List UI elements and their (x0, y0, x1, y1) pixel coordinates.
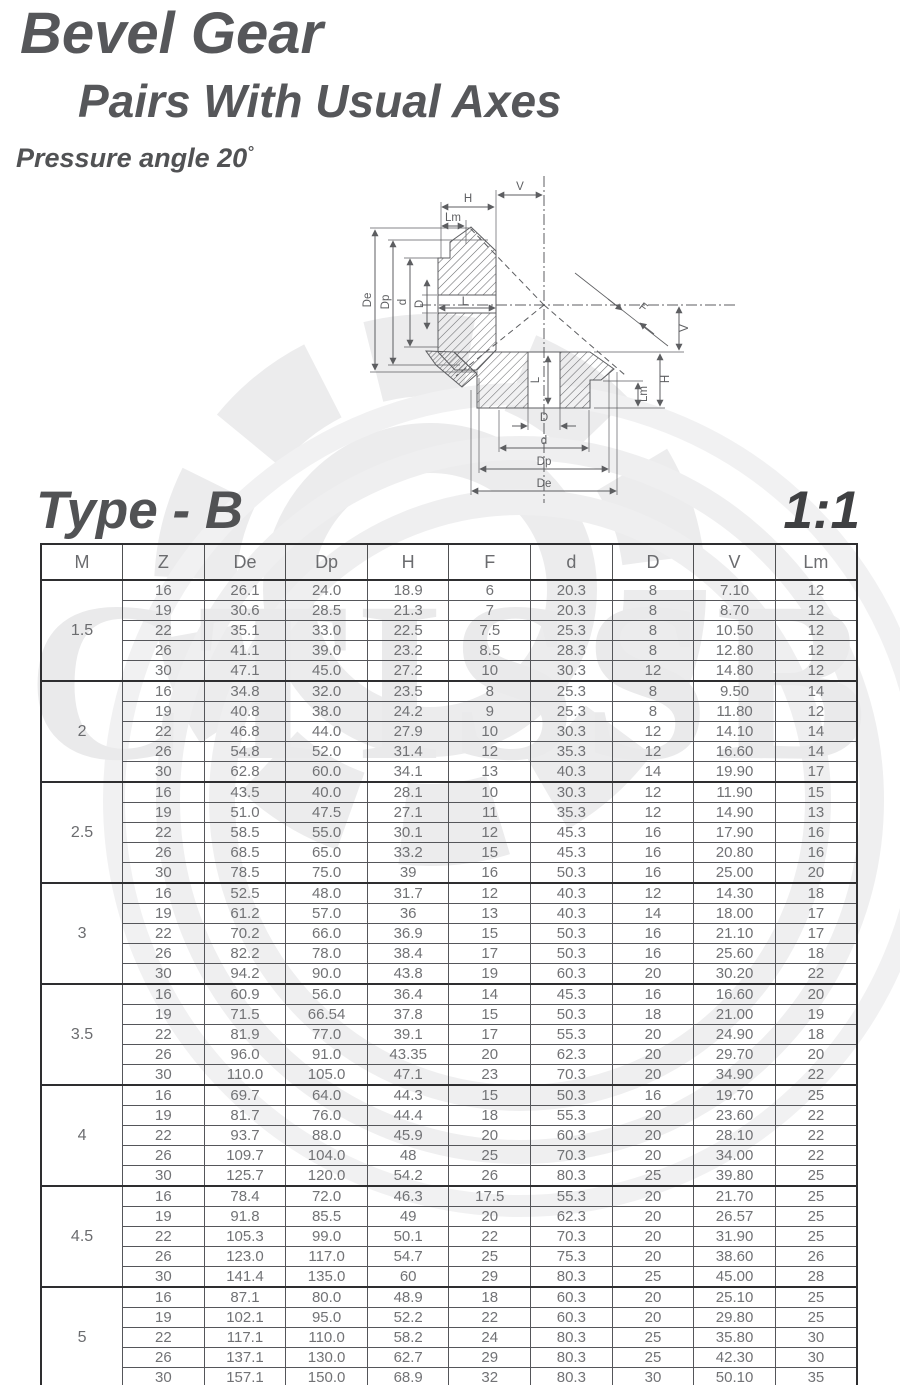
value-cell: 22 (449, 1227, 531, 1247)
table-row: 3062.860.034.11340.31419.9017 (41, 762, 857, 783)
column-header: M (41, 544, 123, 580)
value-cell: 49 (367, 1207, 449, 1227)
value-cell: 46.3 (367, 1186, 449, 1207)
value-cell: 7.10 (694, 580, 776, 601)
value-cell: 22 (449, 1308, 531, 1328)
gear-spec-table: MZDeDpHFdDVLm 1.51626.124.018.9620.387.1… (40, 543, 858, 1385)
value-cell: 25 (775, 1308, 857, 1328)
value-cell: 21.70 (694, 1186, 776, 1207)
value-cell: 26 (449, 1166, 531, 1187)
value-cell: 39.1 (367, 1025, 449, 1045)
value-cell: 16 (612, 863, 694, 884)
module-cell: 3.5 (41, 984, 123, 1085)
value-cell: 13 (775, 803, 857, 823)
value-cell: 18.9 (367, 580, 449, 601)
value-cell: 19 (775, 1005, 857, 1025)
value-cell: 12 (775, 661, 857, 682)
value-cell: 80.3 (531, 1328, 613, 1348)
value-cell: 15 (449, 1005, 531, 1025)
value-cell: 80.3 (531, 1166, 613, 1187)
value-cell: 45.9 (367, 1126, 449, 1146)
value-cell: 31.90 (694, 1227, 776, 1247)
table-row: 2246.844.027.91030.31214.1014 (41, 722, 857, 742)
value-cell: 8 (612, 621, 694, 641)
value-cell: 36.9 (367, 924, 449, 944)
table-row: 2258.555.030.11245.31617.9016 (41, 823, 857, 843)
table-row: 51687.180.048.91860.32025.1025 (41, 1287, 857, 1308)
value-cell: 20 (612, 964, 694, 985)
value-cell: 22 (123, 621, 205, 641)
value-cell: 39 (367, 863, 449, 884)
dim-label-de-left: De (362, 293, 374, 308)
value-cell: 81.9 (204, 1025, 286, 1045)
value-cell: 26 (123, 641, 205, 661)
table-row: 2270.266.036.91550.31621.1017 (41, 924, 857, 944)
value-cell: 55.3 (531, 1106, 613, 1126)
value-cell: 23.2 (367, 641, 449, 661)
value-cell: 78.0 (286, 944, 368, 964)
value-cell: 32 (449, 1368, 531, 1385)
table-row: 1.51626.124.018.9620.387.1012 (41, 580, 857, 601)
value-cell: 19 (123, 1207, 205, 1227)
dim-label-bore-left: D (414, 300, 426, 308)
value-cell: 52.2 (367, 1308, 449, 1328)
value-cell: 71.5 (204, 1005, 286, 1025)
value-cell: 40.3 (531, 883, 613, 904)
value-cell: 7.5 (449, 621, 531, 641)
value-cell: 19 (123, 1005, 205, 1025)
value-cell: 14.90 (694, 803, 776, 823)
table-row: 30125.7120.054.22680.32539.8025 (41, 1166, 857, 1187)
value-cell: 11.90 (694, 782, 776, 803)
value-cell: 60.3 (531, 1126, 613, 1146)
value-cell: 14 (612, 762, 694, 783)
dim-label-l-top-bore: L (462, 296, 469, 308)
value-cell: 20 (612, 1126, 694, 1146)
value-cell: 110.0 (204, 1065, 286, 1086)
table-row: 19102.195.052.22260.32029.8025 (41, 1308, 857, 1328)
value-cell: 94.2 (204, 964, 286, 985)
value-cell: 36 (367, 904, 449, 924)
value-cell: 12 (775, 580, 857, 601)
value-cell: 19 (123, 601, 205, 621)
gear-table-head: MZDeDpHFdDVLm (41, 544, 857, 580)
module-cell: 5 (41, 1287, 123, 1385)
value-cell: 30.20 (694, 964, 776, 985)
table-row: 1981.776.044.41855.32023.6022 (41, 1106, 857, 1126)
value-cell: 60.3 (531, 1287, 613, 1308)
value-cell: 20 (612, 1287, 694, 1308)
value-cell: 25 (775, 1207, 857, 1227)
table-row: 1971.566.5437.81550.31821.0019 (41, 1005, 857, 1025)
dim-label-dp-left: Dp (380, 295, 392, 310)
value-cell: 40.0 (286, 782, 368, 803)
value-cell: 61.2 (204, 904, 286, 924)
column-header: Z (123, 544, 205, 580)
value-cell: 22 (123, 924, 205, 944)
value-cell: 105.0 (286, 1065, 368, 1086)
value-cell: 26 (123, 1045, 205, 1065)
table-row: 21634.832.023.5825.389.5014 (41, 681, 857, 702)
value-cell: 38.60 (694, 1247, 776, 1267)
value-cell: 48.9 (367, 1287, 449, 1308)
value-cell: 30.3 (531, 782, 613, 803)
value-cell: 8 (612, 580, 694, 601)
value-cell: 16 (612, 823, 694, 843)
value-cell: 141.4 (204, 1267, 286, 1288)
value-cell: 17 (449, 1025, 531, 1045)
value-cell: 29.70 (694, 1045, 776, 1065)
value-cell: 25 (775, 1166, 857, 1187)
value-cell: 44.4 (367, 1106, 449, 1126)
value-cell: 37.8 (367, 1005, 449, 1025)
value-cell: 20 (449, 1045, 531, 1065)
value-cell: 50.10 (694, 1368, 776, 1385)
value-cell: 50.3 (531, 924, 613, 944)
value-cell: 50.3 (531, 1005, 613, 1025)
value-cell: 18 (612, 1005, 694, 1025)
table-row: 26123.0117.054.72575.32038.6026 (41, 1247, 857, 1267)
column-header: Lm (775, 544, 857, 580)
value-cell: 24.90 (694, 1025, 776, 1045)
value-cell: 26 (123, 742, 205, 762)
value-cell: 25.00 (694, 863, 776, 884)
value-cell: 22 (775, 1065, 857, 1086)
value-cell: 45.3 (531, 843, 613, 863)
value-cell: 25.10 (694, 1287, 776, 1308)
value-cell: 15 (449, 924, 531, 944)
value-cell: 8.5 (449, 641, 531, 661)
value-cell: 90.0 (286, 964, 368, 985)
column-header: D (612, 544, 694, 580)
value-cell: 15 (449, 1085, 531, 1106)
value-cell: 52.5 (204, 883, 286, 904)
value-cell: 20 (775, 984, 857, 1005)
value-cell: 30 (123, 1065, 205, 1086)
value-cell: 34.1 (367, 762, 449, 783)
value-cell: 64.0 (286, 1085, 368, 1106)
value-cell: 20.80 (694, 843, 776, 863)
value-cell: 52.0 (286, 742, 368, 762)
value-cell: 26 (775, 1247, 857, 1267)
value-cell: 78.5 (204, 863, 286, 884)
value-cell: 18 (775, 1025, 857, 1045)
value-cell: 39.0 (286, 641, 368, 661)
value-cell: 31.4 (367, 742, 449, 762)
value-cell: 105.3 (204, 1227, 286, 1247)
dim-label-v-top: V (516, 181, 524, 193)
value-cell: 54.7 (367, 1247, 449, 1267)
value-cell: 68.5 (204, 843, 286, 863)
value-cell: 77.0 (286, 1025, 368, 1045)
column-header: F (449, 544, 531, 580)
value-cell: 16 (449, 863, 531, 884)
value-cell: 30.3 (531, 722, 613, 742)
value-cell: 24.0 (286, 580, 368, 601)
column-header: d (531, 544, 613, 580)
value-cell: 12 (612, 722, 694, 742)
value-cell: 24 (449, 1328, 531, 1348)
value-cell: 25.3 (531, 702, 613, 722)
value-cell: 78.4 (204, 1186, 286, 1207)
value-cell: 50.3 (531, 863, 613, 884)
dim-label-f: F (636, 301, 649, 315)
value-cell: 50.3 (531, 944, 613, 964)
value-cell: 16 (123, 883, 205, 904)
value-cell: 14.10 (694, 722, 776, 742)
page-subtitle: Pairs With Usual Axes (78, 74, 562, 128)
value-cell: 30 (123, 1368, 205, 1385)
value-cell: 137.1 (204, 1348, 286, 1368)
value-cell: 12 (449, 823, 531, 843)
value-cell: 16 (123, 782, 205, 803)
value-cell: 45.0 (286, 661, 368, 682)
ratio-label: 1:1 (783, 480, 860, 541)
value-cell: 28.3 (531, 641, 613, 661)
value-cell: 26 (123, 843, 205, 863)
value-cell: 20 (612, 1065, 694, 1086)
value-cell: 88.0 (286, 1126, 368, 1146)
value-cell: 22 (775, 964, 857, 985)
value-cell: 12 (775, 601, 857, 621)
value-cell: 30 (123, 1267, 205, 1288)
value-cell: 31.7 (367, 883, 449, 904)
page-title: Bevel Gear (20, 0, 323, 67)
value-cell: 15 (775, 782, 857, 803)
table-row: 1991.885.5492062.32026.5725 (41, 1207, 857, 1227)
value-cell: 20 (612, 1025, 694, 1045)
value-cell: 43.5 (204, 782, 286, 803)
value-cell: 25.60 (694, 944, 776, 964)
value-cell: 30.1 (367, 823, 449, 843)
pressure-angle-note: Pressure angle 20° (16, 143, 254, 174)
value-cell: 26.1 (204, 580, 286, 601)
value-cell: 16 (123, 1085, 205, 1106)
table-row: 3094.290.043.81960.32030.2022 (41, 964, 857, 985)
column-header: V (694, 544, 776, 580)
value-cell: 25 (775, 1287, 857, 1308)
value-cell: 25 (775, 1085, 857, 1106)
dim-label-h-right: H (660, 375, 672, 383)
value-cell: 19 (123, 803, 205, 823)
value-cell: 30.6 (204, 601, 286, 621)
value-cell: 95.0 (286, 1308, 368, 1328)
value-cell: 62.3 (531, 1045, 613, 1065)
table-row: 30141.4135.0602980.32545.0028 (41, 1267, 857, 1288)
value-cell: 104.0 (286, 1146, 368, 1166)
value-cell: 13 (449, 904, 531, 924)
value-cell: 30 (612, 1368, 694, 1385)
value-cell: 10.50 (694, 621, 776, 641)
module-cell: 4.5 (41, 1186, 123, 1287)
table-row: 30110.0105.047.12370.32034.9022 (41, 1065, 857, 1086)
value-cell: 69.7 (204, 1085, 286, 1106)
value-cell: 30 (775, 1328, 857, 1348)
value-cell: 40.3 (531, 762, 613, 783)
value-cell: 55.0 (286, 823, 368, 843)
table-row: 2696.091.043.352062.32029.7020 (41, 1045, 857, 1065)
table-row: 41669.764.044.31550.31619.7025 (41, 1085, 857, 1106)
value-cell: 12 (612, 742, 694, 762)
value-cell: 44.3 (367, 1085, 449, 1106)
value-cell: 56.0 (286, 984, 368, 1005)
value-cell: 50.3 (531, 1085, 613, 1106)
value-cell: 28 (775, 1267, 857, 1288)
value-cell: 123.0 (204, 1247, 286, 1267)
value-cell: 20 (612, 1045, 694, 1065)
value-cell: 8 (612, 641, 694, 661)
value-cell: 35.3 (531, 803, 613, 823)
value-cell: 20 (775, 1045, 857, 1065)
value-cell: 130.0 (286, 1348, 368, 1368)
value-cell: 10 (449, 782, 531, 803)
value-cell: 22 (775, 1106, 857, 1126)
value-cell: 65.0 (286, 843, 368, 863)
value-cell: 22 (123, 1025, 205, 1045)
value-cell: 60.3 (531, 964, 613, 985)
value-cell: 11 (449, 803, 531, 823)
value-cell: 34.00 (694, 1146, 776, 1166)
value-cell: 16 (612, 843, 694, 863)
value-cell: 45.00 (694, 1267, 776, 1288)
value-cell: 34.8 (204, 681, 286, 702)
pressure-angle-text: Pressure angle 20 (16, 143, 247, 173)
value-cell: 70.2 (204, 924, 286, 944)
value-cell: 20.3 (531, 580, 613, 601)
value-cell: 30 (775, 1348, 857, 1368)
value-cell: 16 (775, 823, 857, 843)
value-cell: 8 (612, 601, 694, 621)
value-cell: 14.80 (694, 661, 776, 682)
value-cell: 20.3 (531, 601, 613, 621)
value-cell: 12 (612, 782, 694, 803)
value-cell: 28.10 (694, 1126, 776, 1146)
value-cell: 82.2 (204, 944, 286, 964)
value-cell: 17.5 (449, 1186, 531, 1207)
value-cell: 23.60 (694, 1106, 776, 1126)
value-cell: 18 (775, 944, 857, 964)
value-cell: 20 (612, 1106, 694, 1126)
dim-label-h-top: H (464, 193, 472, 205)
value-cell: 10 (449, 722, 531, 742)
value-cell: 80.0 (286, 1287, 368, 1308)
value-cell: 17 (775, 904, 857, 924)
value-cell: 70.3 (531, 1065, 613, 1086)
value-cell: 58.2 (367, 1328, 449, 1348)
value-cell: 26 (123, 1348, 205, 1368)
value-cell: 91.0 (286, 1045, 368, 1065)
value-cell: 29.80 (694, 1308, 776, 1328)
value-cell: 120.0 (286, 1166, 368, 1187)
value-cell: 25 (775, 1186, 857, 1207)
value-cell: 20 (612, 1247, 694, 1267)
value-cell: 45.3 (531, 823, 613, 843)
column-header: H (367, 544, 449, 580)
value-cell: 54.8 (204, 742, 286, 762)
value-cell: 12 (775, 702, 857, 722)
value-cell: 48.0 (286, 883, 368, 904)
value-cell: 19.70 (694, 1085, 776, 1106)
value-cell: 36.4 (367, 984, 449, 1005)
value-cell: 32.0 (286, 681, 368, 702)
value-cell: 16 (123, 1186, 205, 1207)
value-cell: 22 (123, 1126, 205, 1146)
value-cell: 20 (612, 1207, 694, 1227)
value-cell: 19 (123, 904, 205, 924)
table-row: 26109.7104.0482570.32034.0022 (41, 1146, 857, 1166)
table-row: 2.51643.540.028.11030.31211.9015 (41, 782, 857, 803)
value-cell: 43.35 (367, 1045, 449, 1065)
value-cell: 20 (775, 863, 857, 884)
table-row: 30157.1150.068.93280.33050.1035 (41, 1368, 857, 1385)
module-cell: 4 (41, 1085, 123, 1186)
value-cell: 12 (775, 621, 857, 641)
value-cell: 27.1 (367, 803, 449, 823)
value-cell: 18 (449, 1287, 531, 1308)
value-cell: 22 (123, 1227, 205, 1247)
value-cell: 11.80 (694, 702, 776, 722)
table-row: 2668.565.033.21545.31620.8016 (41, 843, 857, 863)
table-row: 31652.548.031.71240.31214.3018 (41, 883, 857, 904)
module-cell: 2.5 (41, 782, 123, 883)
value-cell: 22 (123, 1328, 205, 1348)
value-cell: 99.0 (286, 1227, 368, 1247)
value-cell: 102.1 (204, 1308, 286, 1328)
value-cell: 25.3 (531, 621, 613, 641)
value-cell: 58.5 (204, 823, 286, 843)
value-cell: 29 (449, 1267, 531, 1288)
value-cell: 14 (775, 681, 857, 702)
value-cell: 27.2 (367, 661, 449, 682)
table-row: 22117.1110.058.22480.32535.8030 (41, 1328, 857, 1348)
value-cell: 26 (123, 1247, 205, 1267)
value-cell: 20 (612, 1186, 694, 1207)
dim-label-dp-bottom: Dp (537, 456, 552, 468)
value-cell: 66.54 (286, 1005, 368, 1025)
value-cell: 16 (123, 681, 205, 702)
value-cell: 23.5 (367, 681, 449, 702)
value-cell: 35.80 (694, 1328, 776, 1348)
value-cell: 26.57 (694, 1207, 776, 1227)
value-cell: 23 (449, 1065, 531, 1086)
table-row: 2654.852.031.41235.31216.6014 (41, 742, 857, 762)
value-cell: 55.3 (531, 1186, 613, 1207)
module-cell: 1.5 (41, 580, 123, 681)
value-cell: 135.0 (286, 1267, 368, 1288)
value-cell: 41.1 (204, 641, 286, 661)
value-cell: 28.5 (286, 601, 368, 621)
value-cell: 15 (449, 843, 531, 863)
value-cell: 60.3 (531, 1308, 613, 1328)
table-row: 22105.399.050.12270.32031.9025 (41, 1227, 857, 1247)
value-cell: 21.10 (694, 924, 776, 944)
value-cell: 70.3 (531, 1146, 613, 1166)
value-cell: 35.1 (204, 621, 286, 641)
table-row: 2293.788.045.92060.32028.1022 (41, 1126, 857, 1146)
value-cell: 110.0 (286, 1328, 368, 1348)
table-row: 26137.1130.062.72980.32542.3030 (41, 1348, 857, 1368)
value-cell: 33.0 (286, 621, 368, 641)
value-cell: 35 (775, 1368, 857, 1385)
table-row: 1930.628.521.3720.388.7012 (41, 601, 857, 621)
value-cell: 20 (449, 1207, 531, 1227)
value-cell: 30 (123, 964, 205, 985)
value-cell: 14 (449, 984, 531, 1005)
value-cell: 47.1 (367, 1065, 449, 1086)
value-cell: 21.00 (694, 1005, 776, 1025)
value-cell: 16.60 (694, 742, 776, 762)
value-cell: 91.8 (204, 1207, 286, 1227)
